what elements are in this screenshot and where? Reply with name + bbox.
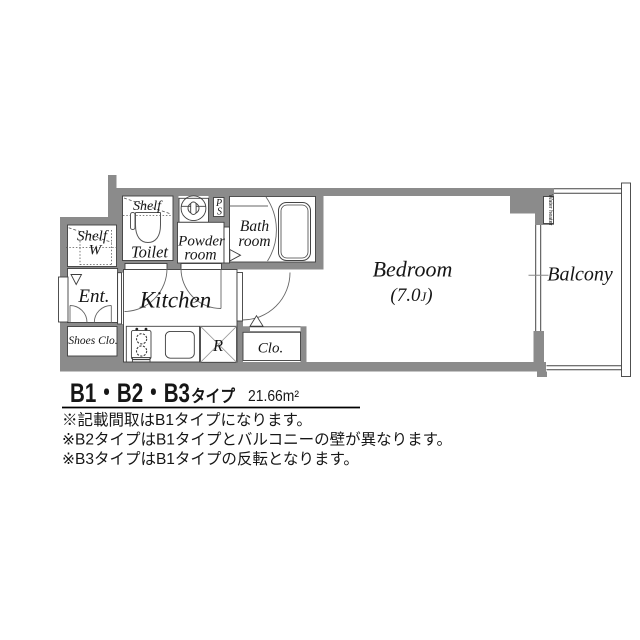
- svg-text:Shelf: Shelf: [133, 199, 163, 214]
- svg-text:room: room: [184, 247, 216, 264]
- svg-text:B1・B2・B3: B1・B2・B3: [70, 378, 190, 408]
- svg-text:Kitchen: Kitchen: [139, 288, 212, 313]
- svg-text:R: R: [212, 336, 223, 355]
- svg-text:Shoes Clo.: Shoes Clo.: [68, 335, 117, 347]
- svg-text:タイプ: タイプ: [191, 386, 236, 406]
- svg-text:Clo.: Clo.: [258, 341, 283, 357]
- svg-text:room: room: [238, 233, 270, 250]
- svg-text:Toilet: Toilet: [131, 243, 168, 262]
- svg-text:Ent.: Ent.: [77, 286, 109, 307]
- svg-text:Water heater: Water heater: [547, 195, 553, 226]
- svg-text:※B3タイプはB1タイプの反転となります。: ※B3タイプはB1タイプの反転となります。: [62, 450, 359, 468]
- svg-text:※B2タイプはB1タイプとバルコニーの壁が異なります。: ※B2タイプはB1タイプとバルコニーの壁が異なります。: [62, 431, 452, 449]
- svg-text:(7.0J): (7.0J): [390, 285, 432, 306]
- svg-text:Balcony: Balcony: [547, 264, 613, 286]
- svg-text:※記載間取はB1タイプになります。: ※記載間取はB1タイプになります。: [62, 411, 312, 429]
- svg-text:S: S: [217, 207, 222, 218]
- svg-text:Bedroom: Bedroom: [373, 257, 453, 282]
- svg-text:W: W: [89, 243, 103, 259]
- svg-text:21.66m²: 21.66m²: [248, 388, 299, 405]
